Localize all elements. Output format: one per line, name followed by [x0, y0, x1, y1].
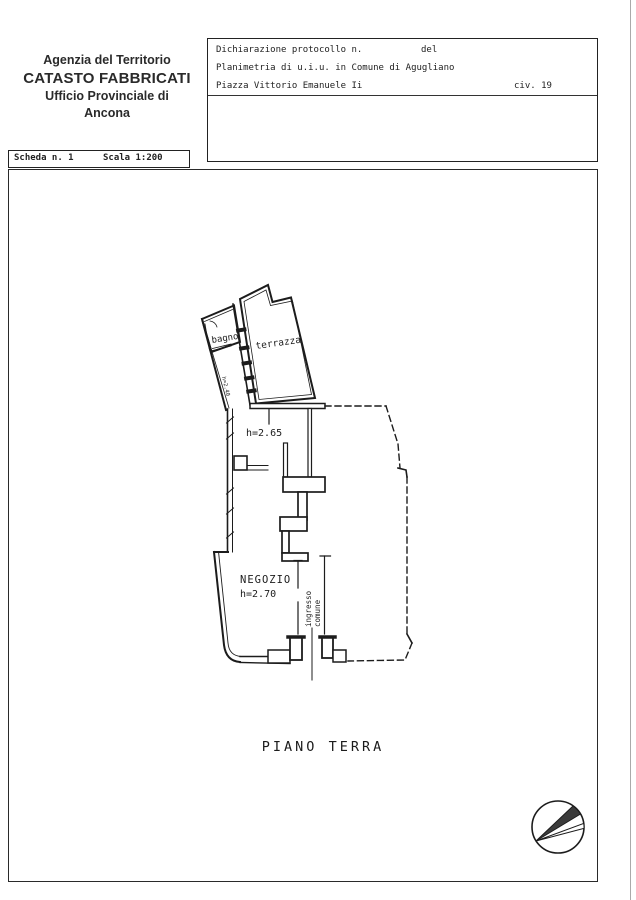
scan-edge-line — [630, 0, 631, 900]
boundary-jog-top — [398, 468, 407, 477]
partition-bar-1 — [283, 477, 325, 492]
ingresso-label-line1: ingresso — [304, 590, 313, 627]
terrazza-label: terrazza — [255, 335, 302, 352]
lower-left-wall — [214, 552, 240, 662]
bagno-door-arc — [210, 321, 217, 327]
partition-wall-a — [284, 443, 288, 477]
dashed-boundary — [325, 406, 412, 661]
main-top-wall — [250, 404, 325, 409]
counter-lines — [247, 466, 268, 471]
cadastral-sheet-page: Agenzia del Territorio CATASTO FABBRICAT… — [0, 0, 636, 900]
partition-bar-4 — [282, 531, 289, 553]
lower-left-wall-inner — [219, 552, 242, 657]
pilaster — [234, 456, 247, 470]
floor-plan-svg: bagno terrazza h=2.40 h=2.65 NEGOZIO h=2… — [0, 0, 636, 900]
agency-logo-icon — [532, 801, 584, 853]
partition-bar-5 — [282, 553, 308, 561]
negozio-label: NEGOZIO — [240, 574, 291, 586]
floor-title: PIANO TERRA — [262, 739, 384, 755]
bottom-wall-right-segment — [333, 650, 346, 662]
entrance-pier-right — [322, 637, 333, 658]
partition-bar-3 — [280, 517, 307, 531]
bottom-wall-segment — [268, 650, 290, 663]
boundary-jog-bottom — [407, 634, 412, 643]
partition-bar-2 — [298, 492, 307, 520]
ingresso-label-line2: comune — [313, 599, 322, 627]
negozio-height-label: h=2.70 — [240, 589, 276, 600]
entrance-pier-left — [290, 637, 302, 660]
upper-left-wall — [202, 319, 226, 410]
partition-wall-b — [308, 409, 312, 478]
main-height-label: h=2.65 — [246, 428, 282, 439]
